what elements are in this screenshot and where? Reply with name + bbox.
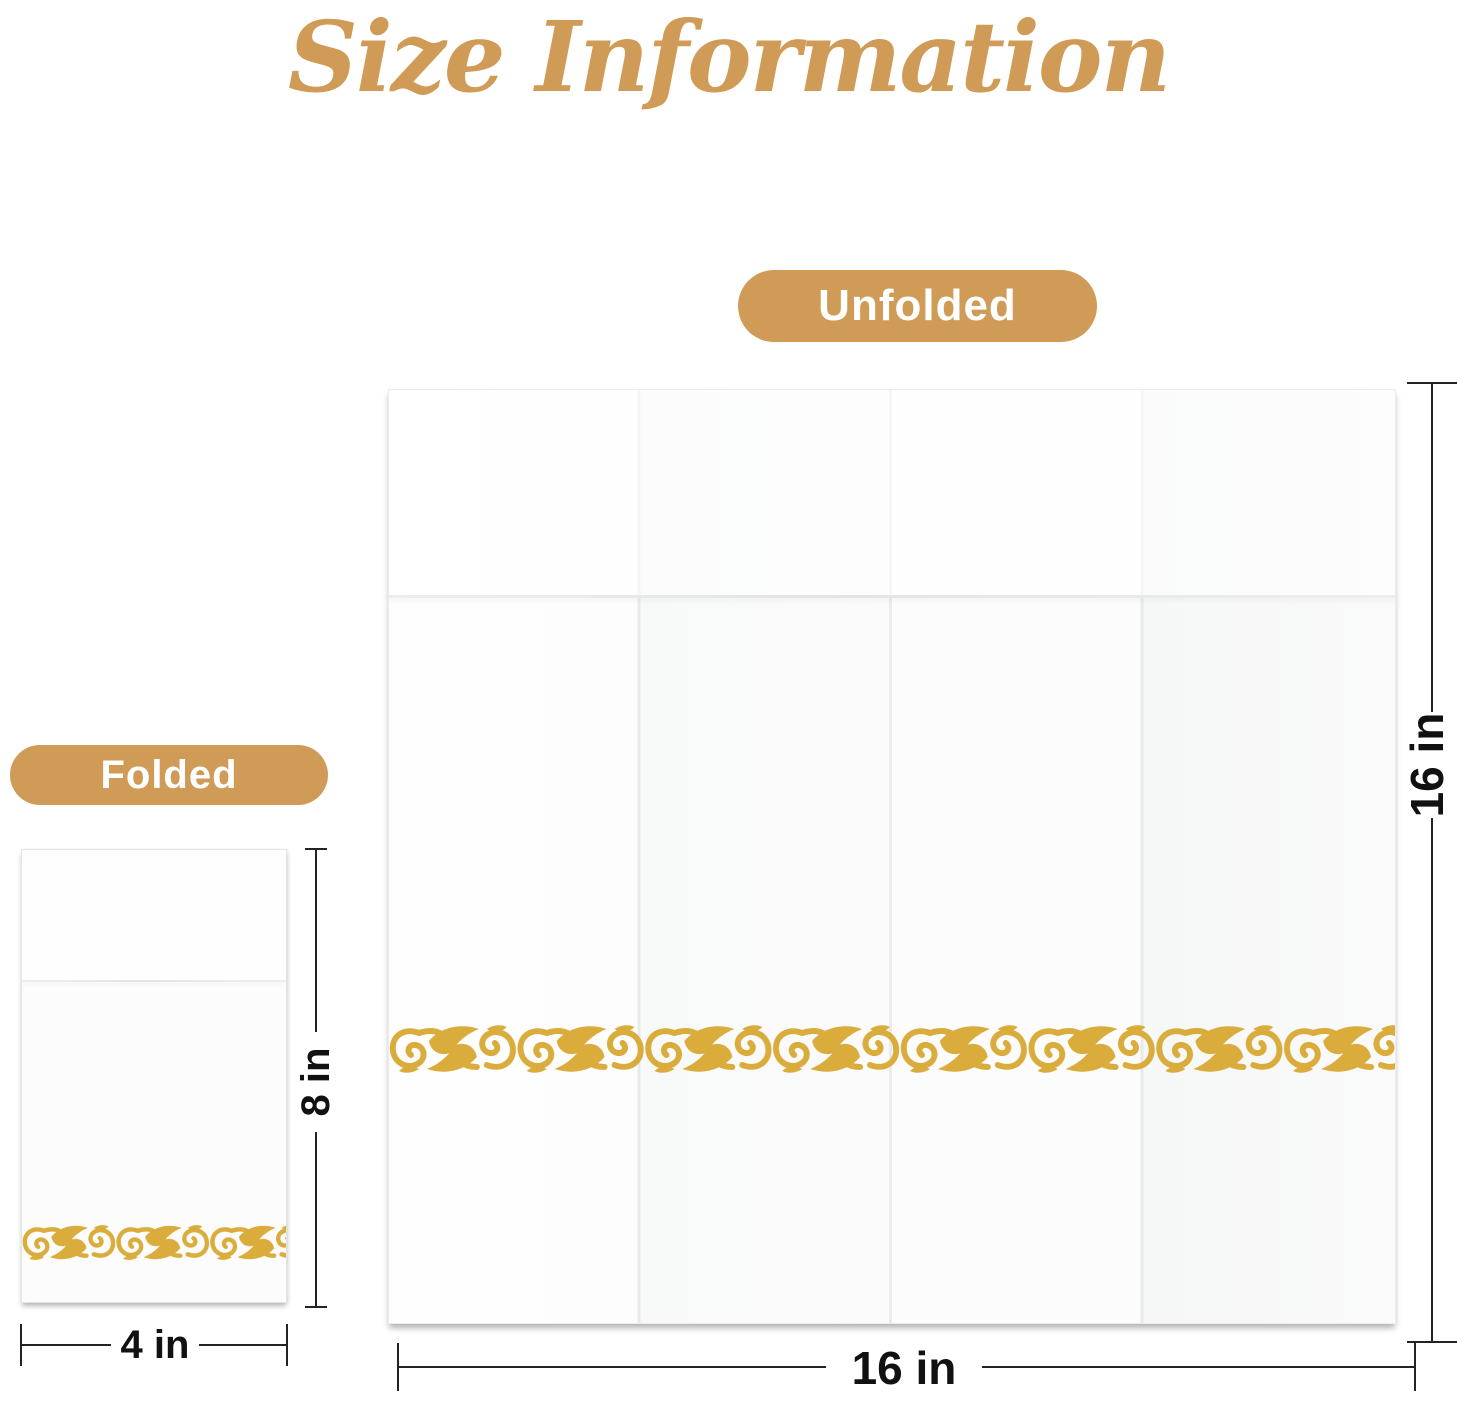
dimension-line	[1431, 818, 1433, 1343]
dimension-line	[1431, 382, 1433, 712]
gold-scroll-border-icon	[22, 1222, 286, 1263]
dimension-cap	[305, 1306, 327, 1308]
unfolded-napkin	[388, 389, 1396, 1324]
unfolded-napkin-ornament-band	[389, 1021, 1395, 1078]
unfolded-width-label: 16 in	[826, 1342, 982, 1394]
folded-napkin-ornament-band	[22, 1222, 286, 1263]
unfolded-napkin-fold-crease	[389, 595, 1395, 598]
folded-napkin	[21, 849, 287, 1303]
folded-napkin-top-fold-shading	[22, 850, 286, 980]
page-title: Size Information	[0, 0, 1457, 115]
unfolded-badge: Unfolded	[738, 270, 1097, 342]
dimension-tick	[286, 1324, 288, 1366]
gold-scroll-border-icon	[389, 1021, 1395, 1078]
dimension-line	[398, 1366, 826, 1368]
folded-badge-label: Folded	[100, 753, 237, 798]
unfolded-napkin-top-fold-shading	[389, 390, 1395, 595]
unfolded-height-label: 16 in	[1401, 690, 1453, 840]
dimension-line	[21, 1344, 111, 1346]
folded-width-label: 4 in	[111, 1322, 199, 1368]
dimension-line	[982, 1366, 1416, 1368]
folded-napkin-fold-crease	[22, 980, 286, 982]
dimension-line	[315, 1132, 317, 1308]
folded-badge: Folded	[10, 745, 328, 805]
dimension-tick	[1414, 1343, 1416, 1391]
dimension-line	[315, 848, 317, 1032]
folded-height-label: 8 in	[293, 1022, 339, 1142]
size-information-infographic: Size Information Unfolded Folded	[0, 0, 1457, 1401]
dimension-line	[199, 1344, 287, 1346]
unfolded-badge-label: Unfolded	[818, 281, 1017, 331]
